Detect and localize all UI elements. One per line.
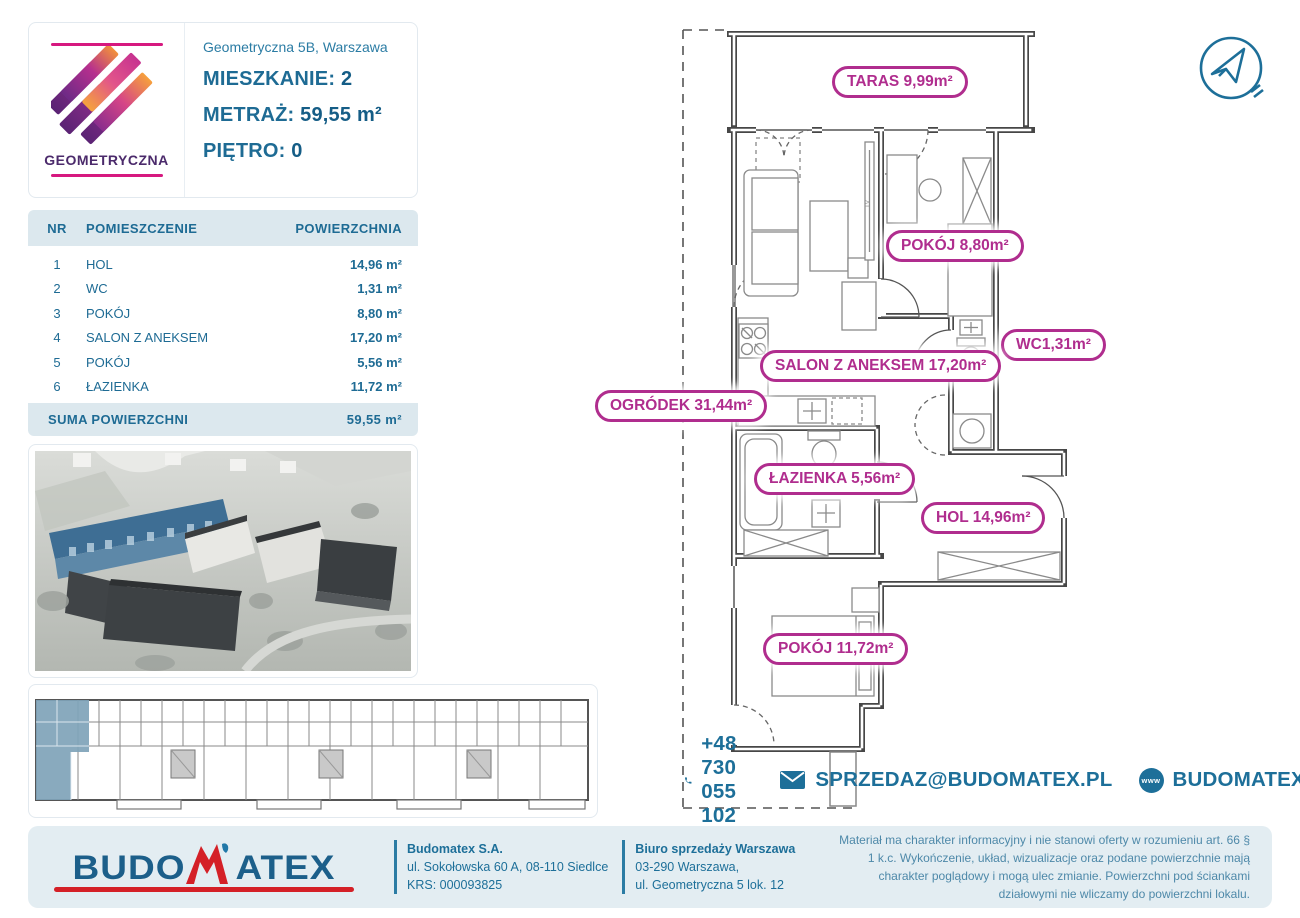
apartment-area: METRAŻ: 59,55 m²	[203, 104, 417, 127]
table-row: 6ŁAZIENKA11,72 m²	[28, 375, 418, 400]
washing-machine	[953, 414, 991, 448]
north-arrow-icon	[1192, 30, 1274, 116]
sofa	[744, 170, 798, 296]
dishwasher	[832, 398, 862, 424]
budomatex-logo-part2: ATEX	[236, 852, 336, 883]
tv-text: TV	[866, 200, 872, 208]
phone-number[interactable]: +48 730 055 102	[701, 732, 753, 828]
hob	[739, 324, 768, 358]
room-label-pokoj-1172: POKÓJ 11,72m²	[763, 633, 908, 665]
washbasin	[812, 500, 840, 527]
nightstand	[852, 588, 879, 612]
phone-item[interactable]: +48 730 055 102	[684, 732, 753, 828]
company-name: Budomatex S.A.	[407, 840, 608, 858]
company-info: Budomatex S.A. ul. Sokołowska 60 A, 08-1…	[394, 840, 608, 894]
chair	[919, 179, 941, 201]
info-card: GEOMETRYCZNA Geometryczna 5B, Warszawa M…	[28, 22, 418, 198]
room-label-ogrodek: OGRÓDEK 31,44m²	[595, 390, 767, 422]
brand-logo: GEOMETRYCZNA	[29, 23, 185, 197]
apartment-floor: PIĘTRO: 0	[203, 140, 417, 163]
phone-icon	[684, 768, 692, 793]
website-url[interactable]: BUDOMATEX.PL	[1173, 768, 1300, 792]
room-label-lazienka: ŁAZIENKA 5,56m²	[754, 463, 915, 495]
footer: BUDO ATEX Budomatex S.A. ul. Sokołowska …	[28, 826, 1272, 908]
table-row: 5POKÓJ5,56 m²	[28, 350, 418, 375]
table-row: 2WC1,31 m²	[28, 277, 418, 302]
table-header: NR POMIESZCZENIE POWIERZCHNIA	[28, 210, 418, 246]
table-body: 1HOL14,96 m² 2WC1,31 m² 3POKÓJ8,80 m² 4S…	[28, 246, 418, 403]
room-label-salon: SALON Z ANEKSEM 17,20m²	[760, 350, 1001, 382]
kitchen-sink	[798, 399, 826, 423]
apartment-number: MIESZKANIE: 2	[203, 68, 417, 91]
legal-text: Materiał ma charakter informacyjny i nie…	[795, 831, 1272, 903]
budomatex-logo-underline	[54, 887, 354, 892]
budomatex-logo-part1: BUDO	[73, 852, 186, 883]
www-icon: www	[1139, 768, 1164, 793]
hall-wardrobe-right	[938, 552, 1060, 580]
hall-wardrobe-left	[744, 530, 828, 556]
office-name: Biuro sprzedaży Warszawa	[635, 840, 795, 858]
wardrobe	[963, 158, 991, 224]
company-krs: KRS: 000093825	[407, 876, 608, 894]
company-address: ul. Sokołowska 60 A, 08-110 Siedlce	[407, 858, 608, 876]
email-icon	[779, 769, 806, 791]
compass	[1192, 30, 1274, 121]
desk	[887, 155, 917, 223]
coffee-table	[810, 201, 848, 271]
budomatex-logo-m-icon	[184, 842, 238, 884]
email-item[interactable]: SPRZEDAZ@BUDOMATEX.PL	[779, 768, 1112, 792]
room-label-hol: HOL 14,96m²	[921, 502, 1045, 534]
room-table: NR POMIESZCZENIE POWIERZCHNIA 1HOL14,96 …	[28, 210, 418, 432]
geometryczna-logo-icon	[51, 46, 163, 146]
aerial-render	[35, 451, 411, 671]
table-row: 4SALON Z ANEKSEM17,20 m²	[28, 326, 418, 351]
room-label-pokoj-880: POKÓJ 8,80m²	[886, 230, 1024, 262]
office-street: ul. Geometryczna 5 lok. 12	[635, 876, 795, 894]
table-row: 3POKÓJ8,80 m²	[28, 301, 418, 326]
toilet	[808, 431, 840, 467]
email-address[interactable]: SPRZEDAZ@BUDOMATEX.PL	[815, 768, 1112, 792]
building-strip-plan	[31, 688, 595, 814]
table-row: 1HOL14,96 m²	[28, 252, 418, 277]
contact-bar: +48 730 055 102 SPRZEDAZ@BUDOMATEX.PL ww…	[684, 758, 1300, 802]
office-city: 03-290 Warszawa,	[635, 858, 795, 876]
brand-name: GEOMETRYCZNA	[44, 152, 168, 168]
website-item[interactable]: www BUDOMATEX.PL	[1139, 768, 1300, 793]
room-label-taras: TARAS 9,99m²	[832, 66, 968, 98]
project-address: Geometryczna 5B, Warszawa	[203, 39, 417, 55]
table-total-row: SUMA POWIERZCHNI 59,55 m²	[28, 403, 418, 436]
room-label-wc: WC1,31m²	[1001, 329, 1106, 361]
wc-sink	[960, 320, 982, 335]
building-strip-card	[28, 684, 598, 818]
logo-rule-bottom	[51, 174, 163, 177]
unit-info: Geometryczna 5B, Warszawa MIESZKANIE: 2 …	[185, 23, 417, 197]
budomatex-logo: BUDO ATEX	[28, 842, 380, 892]
page: GEOMETRYCZNA Geometryczna 5B, Warszawa M…	[0, 0, 1300, 918]
sales-office-info: Biuro sprzedaży Warszawa 03-290 Warszawa…	[622, 840, 795, 894]
aerial-render-card	[28, 444, 418, 678]
